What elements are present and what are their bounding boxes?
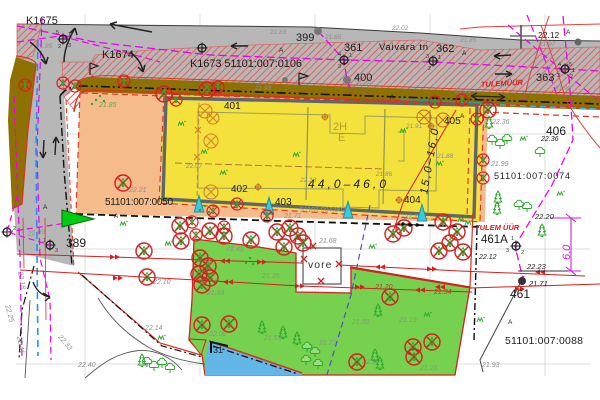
svg-text:A: A	[566, 29, 571, 36]
svg-text:22.21: 22.21	[128, 187, 147, 194]
svg-text:403: 403	[275, 197, 292, 208]
svg-text:5: 5	[56, 30, 59, 36]
svg-text:21.71: 21.71	[283, 213, 302, 220]
svg-text:3: 3	[68, 43, 71, 49]
svg-text:399: 399	[296, 32, 314, 44]
svg-text:21.68: 21.68	[318, 238, 337, 245]
svg-text:461: 461	[510, 287, 530, 301]
svg-text:22.20: 22.20	[534, 212, 555, 221]
svg-text:21.98: 21.98	[554, 85, 572, 92]
svg-text:1: 1	[438, 55, 441, 61]
svg-text:401: 401	[224, 101, 241, 112]
svg-text:A: A	[114, 213, 119, 220]
svg-text:22.07: 22.07	[185, 163, 203, 170]
svg-text:1: 1	[572, 68, 575, 74]
svg-text:21.25: 21.25	[419, 365, 438, 372]
svg-text:405: 405	[444, 116, 461, 127]
svg-text:21.34: 21.34	[433, 289, 452, 296]
svg-text:389: 389	[66, 236, 86, 250]
svg-text:3: 3	[55, 248, 58, 254]
svg-text:404: 404	[404, 195, 421, 206]
svg-text:51101:007:0074: 51101:007:0074	[494, 171, 570, 181]
svg-text:21.35: 21.35	[261, 273, 280, 280]
svg-text:6,0: 6,0	[561, 244, 573, 260]
svg-text:A: A	[43, 204, 48, 211]
svg-text:3: 3	[426, 54, 429, 60]
svg-text:22.14: 22.14	[144, 325, 163, 332]
svg-text:A: A	[460, 113, 465, 120]
svg-text:21.85: 21.85	[324, 34, 342, 41]
svg-text:2: 2	[13, 226, 16, 232]
svg-text:22.36: 22.36	[491, 119, 510, 126]
svg-text:21.91: 21.91	[405, 123, 423, 130]
svg-text:A: A	[508, 319, 513, 326]
svg-text:21.20: 21.20	[374, 284, 393, 291]
svg-text:22.23: 22.23	[526, 262, 547, 271]
svg-text:361: 361	[344, 42, 362, 54]
svg-text:362: 362	[436, 43, 454, 55]
svg-text:21.71: 21.71	[528, 279, 548, 288]
svg-text:2: 2	[521, 250, 524, 256]
svg-text:22.08: 22.08	[208, 331, 227, 338]
svg-text:A: A	[462, 50, 467, 57]
svg-text:21.85: 21.85	[98, 102, 117, 109]
svg-text:2: 2	[570, 74, 573, 80]
svg-text:21.93: 21.93	[254, 85, 272, 92]
svg-text:3: 3	[557, 73, 560, 79]
svg-text:22.40: 22.40	[77, 362, 96, 369]
svg-text:402: 402	[231, 184, 248, 195]
svg-text:21.72: 21.72	[318, 340, 337, 347]
svg-text:3: 3	[506, 248, 509, 254]
svg-text:21.85: 21.85	[459, 37, 477, 44]
svg-text:2: 2	[428, 66, 431, 72]
svg-text:K1673 51101:007:0106: K1673 51101:007:0106	[190, 58, 302, 70]
svg-text:21.97: 21.97	[538, 41, 556, 48]
svg-text:31: 31	[213, 345, 223, 355]
svg-text:Vaivara tn: Vaivara tn	[379, 42, 428, 53]
svg-text:E: E	[338, 132, 345, 144]
svg-text:22.12: 22.12	[478, 254, 497, 261]
svg-text:21.88: 21.88	[436, 153, 454, 160]
svg-text:1: 1	[511, 236, 514, 242]
svg-text:51101:007:0050: 51101:007:0050	[105, 197, 173, 208]
svg-text:461A: 461A	[481, 234, 508, 246]
svg-text:3: 3	[338, 64, 341, 70]
svg-text:1: 1	[349, 53, 352, 59]
svg-text:21.86: 21.86	[375, 171, 393, 178]
svg-text:363: 363	[536, 72, 554, 84]
svg-text:2: 2	[58, 44, 61, 50]
svg-text:21.95: 21.95	[354, 81, 372, 88]
svg-text:21.83: 21.83	[269, 29, 287, 36]
svg-text:22.02: 22.02	[391, 25, 409, 32]
svg-text:22.36: 22.36	[540, 136, 559, 143]
svg-text:21.59: 21.59	[351, 319, 370, 326]
svg-text:21.99: 21.99	[490, 161, 509, 168]
svg-text:A: A	[279, 47, 284, 54]
svg-text:21.93: 21.93	[481, 362, 500, 369]
svg-text:21.19: 21.19	[398, 317, 417, 324]
svg-text:K1675: K1675	[26, 15, 58, 27]
svg-text:44,0–46,0: 44,0–46,0	[308, 177, 386, 191]
svg-text:vore: vore	[308, 259, 332, 271]
svg-text:22.13: 22.13	[299, 177, 317, 184]
svg-text:51101:007:0025: 51101:007:0025	[300, 207, 350, 214]
svg-text:4: 4	[558, 62, 561, 68]
svg-text:22.12: 22.12	[538, 30, 560, 40]
svg-text:21.53: 21.53	[263, 335, 282, 342]
svg-text:21.84: 21.84	[206, 290, 225, 297]
svg-text:K1674: K1674	[102, 49, 134, 61]
svg-text:51101:007:0088: 51101:007:0088	[505, 335, 583, 347]
svg-text:A: A	[390, 94, 395, 101]
svg-text:TULEM ÜÜR: TULEM ÜÜR	[475, 223, 520, 232]
